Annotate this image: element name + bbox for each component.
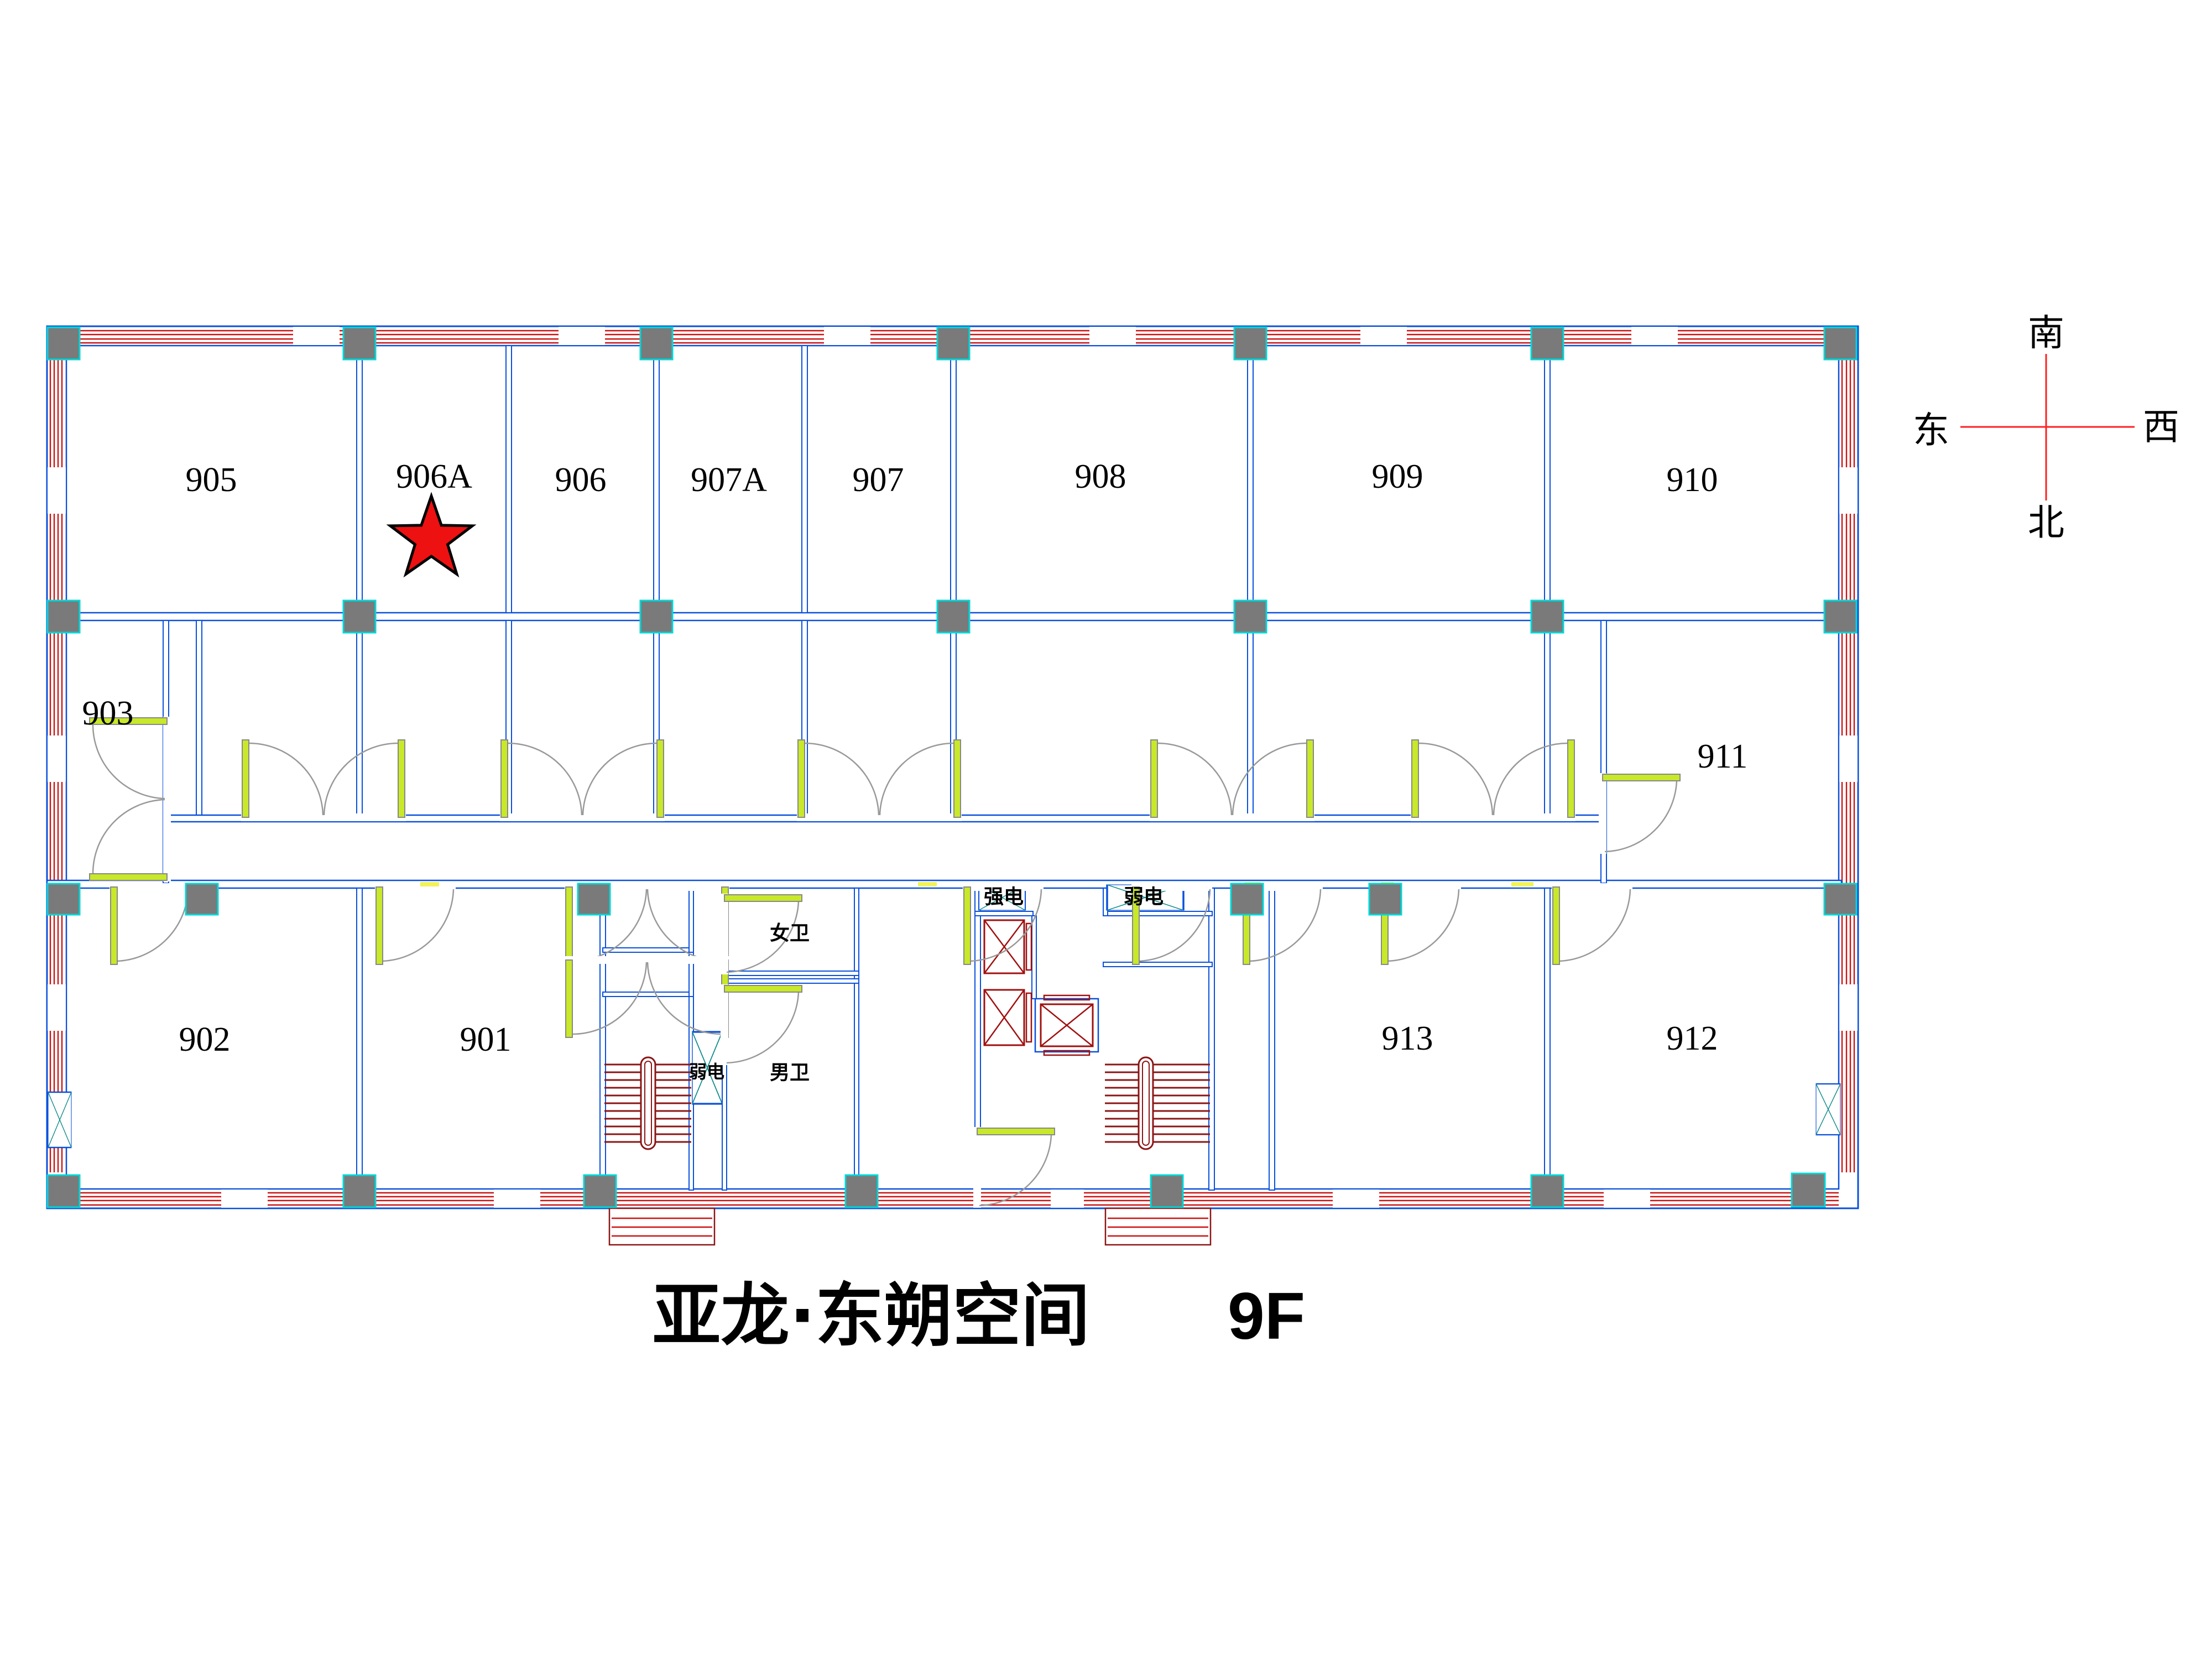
room-label-910: 910: [1667, 461, 1718, 499]
door-901: [375, 883, 456, 964]
room-label-906A: 906A: [396, 458, 472, 495]
compass-south: 南: [2028, 312, 2064, 354]
room-label-901: 901: [460, 1021, 512, 1058]
left-wall-shaft: [48, 1092, 71, 1147]
label-mens-toilet: 男卫: [770, 1062, 810, 1084]
room-label-906: 906: [555, 461, 607, 499]
stair-exits: [609, 1208, 1211, 1245]
double-door: [90, 717, 171, 881]
room-label-907: 907: [853, 461, 904, 499]
room-label-907A: 907A: [691, 461, 767, 499]
compass: 南 北 东 西: [1913, 312, 2179, 544]
elevator-3: [1035, 995, 1098, 1055]
room-label-913: 913: [1382, 1020, 1433, 1057]
door-911: [1599, 773, 1680, 854]
door-902: [109, 883, 190, 964]
room-label-909: 909: [1372, 458, 1423, 495]
room-label-911: 911: [1698, 738, 1748, 775]
room-label-912: 912: [1667, 1020, 1718, 1057]
room-label-905: 905: [186, 461, 237, 499]
room-label-908: 908: [1075, 458, 1126, 495]
door-912: [1552, 883, 1632, 964]
label-womens-toilet: 女卫: [770, 922, 810, 945]
compass-north: 北: [2028, 502, 2064, 544]
double-door: [1411, 740, 1575, 821]
label-strong-electric: 强电: [984, 886, 1024, 909]
compass-cross: [1960, 354, 2135, 500]
double-door: [1150, 740, 1314, 821]
double-door: [797, 740, 962, 821]
door-mens-toilet: [721, 984, 802, 1065]
double-door: [500, 740, 665, 821]
compass-west: 西: [2143, 406, 2179, 448]
room-label-903: 903: [82, 695, 134, 732]
right-wall-shaft: [1816, 1084, 1840, 1135]
elevator-2: [984, 990, 1031, 1045]
floor-plan-canvas: 905 906A 906 907A 907 908 909 910 911 90…: [0, 0, 2212, 1659]
room-label-902: 902: [179, 1021, 231, 1058]
stair-b-handrail: [1139, 1057, 1153, 1149]
floor-plan-drawing: 905 906A 906 907A 907 908 909 910 911 90…: [0, 0, 2212, 1659]
toilet-stair-core: [603, 888, 859, 1190]
label-weak-electric: 弱电: [1124, 886, 1164, 909]
label-weak-electric-small: 弱电: [689, 1061, 724, 1082]
star-marker: [390, 496, 472, 574]
elevator-core: [975, 885, 1214, 1190]
plan-title: 亚龙·东朔空间: [652, 1276, 1089, 1356]
floor-label: 9F: [1228, 1279, 1305, 1353]
doors: [90, 717, 1680, 1208]
compass-east: 东: [1913, 409, 1949, 452]
stair-b-treads: [1105, 1065, 1210, 1142]
double-door: [241, 740, 406, 821]
bottom-window-band: [66, 1191, 1839, 1207]
stair-a-handrail: [641, 1057, 655, 1149]
elevator-1: [984, 920, 1031, 973]
